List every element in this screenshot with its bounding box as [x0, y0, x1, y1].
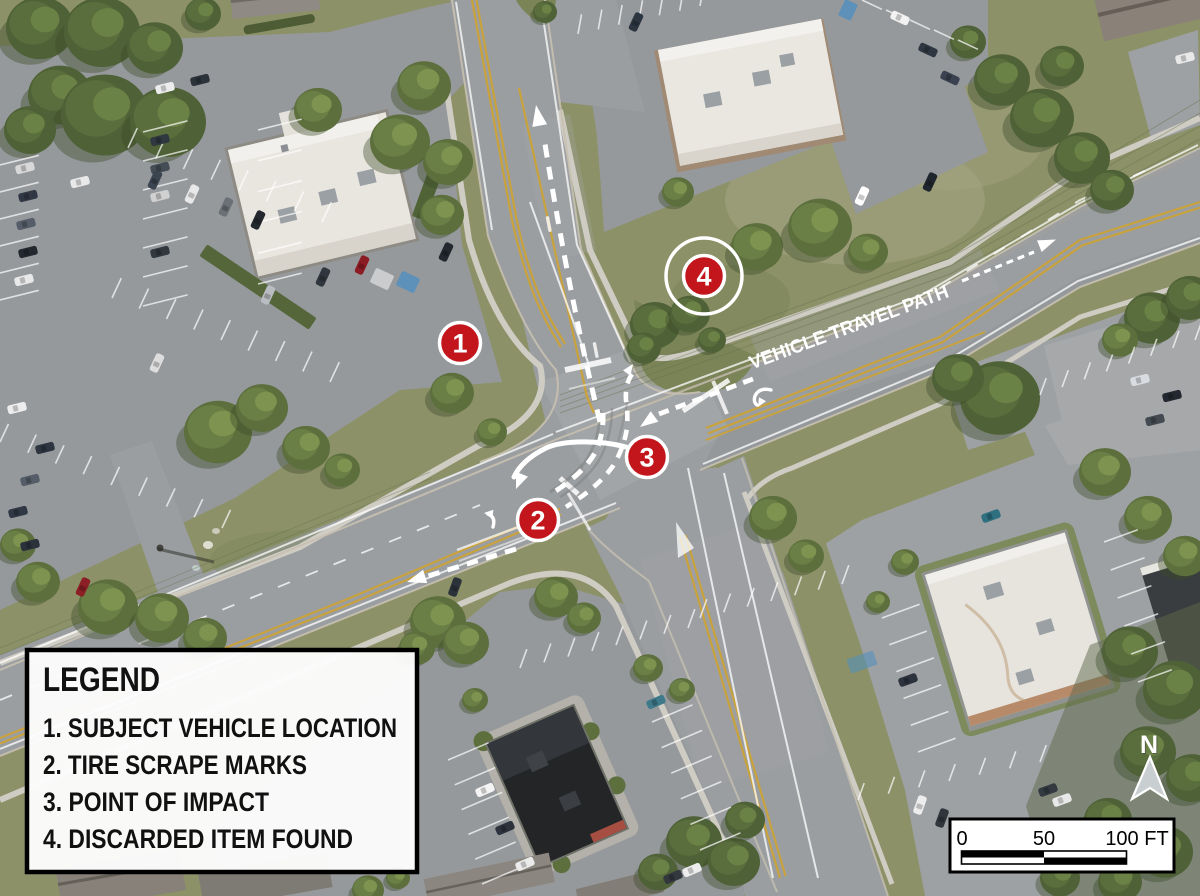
svg-text:1. SUBJECT VEHICLE LOCATION: 1. SUBJECT VEHICLE LOCATION [43, 713, 397, 743]
svg-text:0: 0 [956, 828, 967, 850]
svg-text:N: N [1140, 731, 1158, 759]
svg-text:LEGEND: LEGEND [43, 661, 160, 699]
svg-text:4. DISCARDED ITEM FOUND: 4. DISCARDED ITEM FOUND [43, 824, 353, 854]
svg-text:100 FT: 100 FT [1105, 828, 1168, 850]
svg-text:2: 2 [530, 506, 545, 536]
svg-text:3: 3 [639, 443, 654, 473]
svg-text:2. TIRE SCRAPE MARKS: 2. TIRE SCRAPE MARKS [43, 750, 307, 780]
svg-text:50: 50 [1033, 828, 1055, 850]
svg-text:4: 4 [696, 262, 711, 292]
svg-text:3. POINT OF IMPACT: 3. POINT OF IMPACT [43, 787, 269, 817]
svg-text:1: 1 [452, 329, 467, 359]
